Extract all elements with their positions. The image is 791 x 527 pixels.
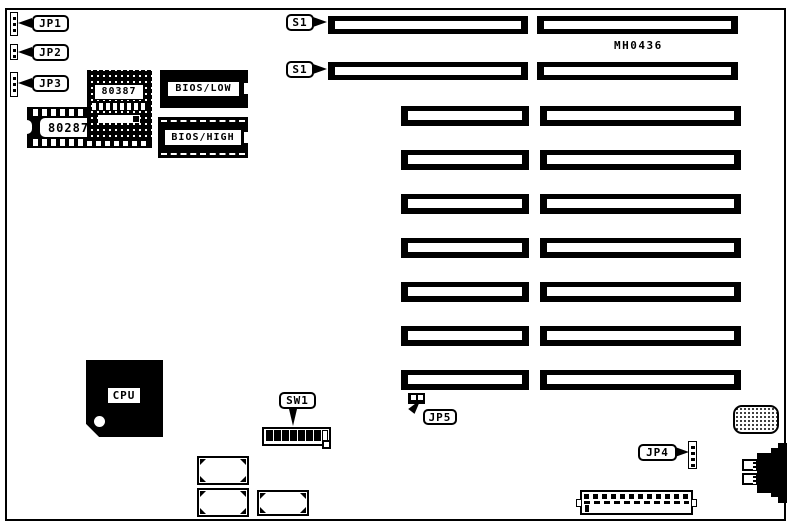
jp3-pointer-arrow-icon — [18, 78, 32, 88]
bios-low-label: BIOS/LOW — [167, 81, 240, 97]
socket-pin-row — [92, 103, 147, 110]
power-cells-row — [585, 505, 688, 512]
s1-label-slot1: S1 — [286, 14, 314, 31]
bios-low-notch — [244, 83, 249, 94]
cpu-pin1-dot — [94, 416, 105, 427]
power-cell — [585, 505, 589, 512]
jp1-pointer-arrow-icon — [18, 18, 32, 28]
slot-stripe — [547, 375, 734, 384]
pin-ticks — [753, 476, 756, 484]
expansion-slot-9-left — [401, 370, 529, 390]
empty-socket-2 — [197, 488, 249, 517]
slot-stripe — [547, 331, 734, 340]
cpu-label: CPU — [107, 387, 141, 404]
corner-mark — [240, 476, 246, 482]
jp3-label: JP3 — [32, 75, 69, 92]
slot-stripe — [547, 199, 734, 208]
expansion-slot-2-right — [537, 62, 738, 80]
bios-high-notch — [244, 132, 248, 143]
motherboard-diagram: JP1 JP2 JP3 80287 80387 BIOS/LOW BIOS/HI… — [0, 0, 791, 527]
dip-cell — [282, 430, 289, 441]
jp2-pointer-arrow-icon — [18, 47, 32, 57]
socket-key-square — [133, 116, 139, 122]
slot-stripe — [408, 287, 522, 296]
expansion-slot-6-right — [540, 238, 741, 258]
s1-label-slot2: S1 — [286, 61, 314, 78]
s1-pointer-arrow-icon — [313, 17, 327, 27]
jp4-pointer-arrow-icon — [675, 447, 689, 457]
chip-notch — [27, 120, 32, 134]
expansion-slot-8-left — [401, 326, 529, 346]
sw1-label: SW1 — [279, 392, 316, 409]
expansion-slot-3-left — [401, 106, 529, 126]
jp3-pin-header — [10, 72, 18, 97]
corner-mark — [300, 493, 306, 499]
expansion-slot-1-right — [537, 16, 738, 34]
corner-mark — [240, 508, 246, 514]
expansion-slot-8-right — [540, 326, 741, 346]
power-connector — [580, 490, 693, 515]
slot-stripe — [335, 67, 521, 75]
keyboard-connector-pin — [742, 459, 758, 471]
slot-stripe — [408, 199, 522, 208]
corner-mark — [240, 491, 246, 497]
corner-mark — [200, 491, 206, 497]
dip-cell — [290, 430, 297, 441]
expansion-slot-9-right — [540, 370, 741, 390]
slot-stripe — [544, 67, 731, 75]
corner-mark — [200, 508, 206, 514]
slot-stripe — [547, 243, 734, 252]
power-pins-row — [584, 494, 689, 499]
dip-cell — [314, 430, 321, 441]
jp5-label: JP5 — [423, 409, 457, 425]
empty-socket-3 — [257, 490, 309, 516]
corner-mark — [300, 507, 306, 513]
empty-socket-1 — [197, 456, 249, 485]
slot-stripe — [547, 155, 734, 164]
coprocessor-80387-socket: 80387 — [87, 70, 152, 141]
pin-ticks — [753, 462, 756, 470]
expansion-slot-5-right — [540, 194, 741, 214]
expansion-slot-1-left — [328, 16, 528, 34]
slot-stripe — [547, 111, 734, 120]
slot-stripe — [547, 287, 734, 296]
sw1-corner-square — [322, 440, 331, 449]
slot-stripe — [408, 243, 522, 252]
crosshatched-component — [733, 405, 779, 434]
dip-cell — [306, 430, 313, 441]
expansion-slot-6-left — [401, 238, 529, 258]
jp4-label: JP4 — [638, 444, 677, 461]
bios-low-chip: BIOS/LOW — [160, 70, 248, 108]
jp4-pin-header — [688, 441, 697, 469]
s1-pointer-arrow-icon — [313, 64, 327, 74]
dip-cell — [266, 430, 273, 441]
dip-cell — [274, 430, 281, 441]
corner-mark — [240, 459, 246, 465]
jp2-pin-header — [10, 44, 18, 60]
corner-mark — [260, 507, 266, 513]
expansion-slot-4-right — [540, 150, 741, 170]
corner-mark — [200, 459, 206, 465]
keyboard-connector-step — [778, 443, 787, 503]
dip-cell — [298, 430, 305, 441]
corner-mark — [200, 476, 206, 482]
expansion-slot-7-left — [401, 282, 529, 302]
jp1-label: JP1 — [32, 15, 69, 32]
bios-high-label: BIOS/HIGH — [164, 129, 242, 146]
slot-stripe — [408, 155, 522, 164]
slot-stripe — [408, 331, 522, 340]
slot-stripe — [335, 21, 521, 29]
corner-mark — [260, 493, 266, 499]
expansion-slot-5-left — [401, 194, 529, 214]
power-notch-right — [691, 499, 697, 507]
coprocessor-80387-label: 80387 — [94, 84, 144, 100]
socket-key-bar — [98, 115, 140, 123]
slot-stripe — [408, 375, 522, 384]
bios-high-chip: BIOS/HIGH — [158, 117, 248, 158]
bios-high-dash-top — [161, 120, 245, 122]
power-dash-row — [584, 501, 689, 504]
expansion-slot-2-left — [328, 62, 528, 80]
jp1-pin-header — [10, 12, 18, 36]
slot-stripe — [544, 21, 731, 29]
cpu-chip: CPU — [86, 360, 163, 437]
sw1-dip-switch — [262, 427, 331, 446]
expansion-slot-3-right — [540, 106, 741, 126]
expansion-slot-7-right — [540, 282, 741, 302]
chip-pins-top — [33, 109, 89, 116]
keyboard-connector-pin — [742, 473, 758, 485]
power-notch-left — [576, 499, 582, 507]
slot-stripe — [408, 111, 522, 120]
jp2-label: JP2 — [32, 44, 69, 61]
part-number-text: MH0436 — [614, 40, 663, 51]
expansion-slot-4-left — [401, 150, 529, 170]
bios-high-dash-bottom — [161, 153, 245, 155]
sw1-pointer-arrow-icon — [289, 409, 297, 426]
